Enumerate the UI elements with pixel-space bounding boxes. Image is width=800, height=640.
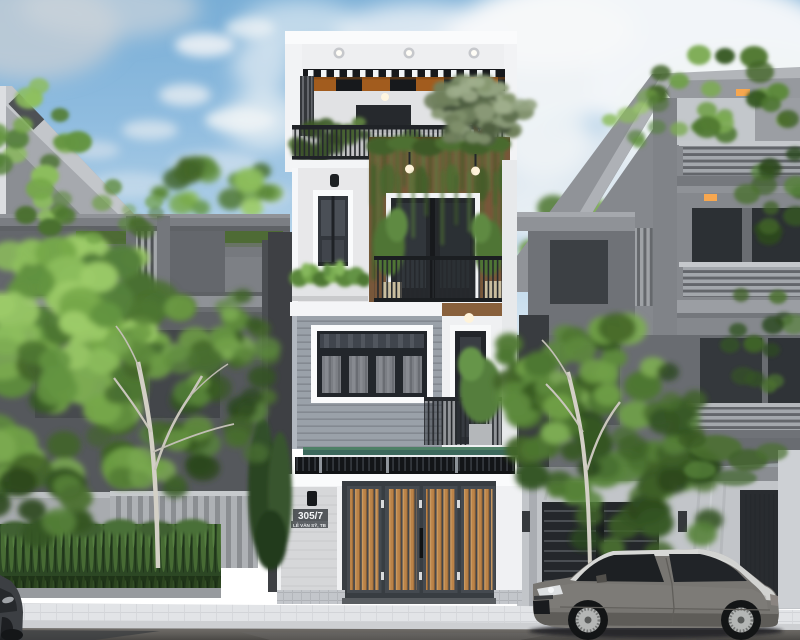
svg-text:LÊ VĂN SỸ, TB: LÊ VĂN SỸ, TB: [293, 521, 327, 528]
svg-text:305/7: 305/7: [298, 511, 323, 522]
